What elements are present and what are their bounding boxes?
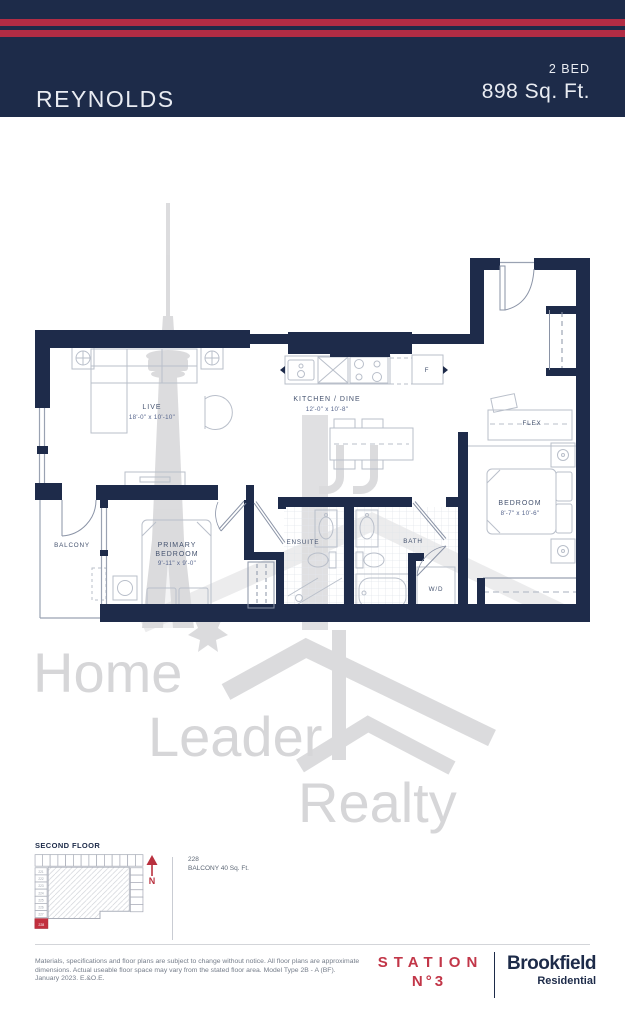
- keyplan-unit: 224: [38, 891, 43, 895]
- brookfield-logo: Brookfield Residential: [502, 953, 596, 987]
- kitchen-label: KITCHEN / DINE: [293, 396, 360, 403]
- header-stripe-bottom: [0, 30, 625, 37]
- lounge-chair: [205, 395, 232, 429]
- keyplan-unit: 223: [38, 884, 43, 888]
- primary-label-line2: BEDROOM: [155, 551, 198, 558]
- watermark-word-leader: Leader: [148, 705, 322, 768]
- keyplan-drawing: 221 222 223 224 225 226 227 228: [34, 853, 144, 937]
- keyplan-unit: 227: [38, 913, 43, 917]
- suite-number: 228: [188, 856, 249, 865]
- station-logo-line2: N°3: [370, 973, 485, 990]
- live-label: LIVE: [142, 404, 161, 411]
- nightstand: [551, 443, 575, 467]
- keyplan-unit: 226: [38, 906, 43, 910]
- light-fixture: [201, 347, 223, 369]
- bed-count-label: 2 BED: [482, 62, 590, 76]
- bedroom-label: BEDROOM: [498, 500, 541, 507]
- footer-logo-divider: [494, 952, 495, 998]
- keyplan-unit: 225: [38, 898, 43, 902]
- keyplan-unit: 221: [38, 870, 43, 874]
- flex-label: FLEX: [523, 420, 542, 427]
- brookfield-logo-line1: Brookfield: [502, 953, 596, 975]
- watermark-word-realty: Realty: [298, 771, 457, 834]
- kitchen-dims: 12'-0" x 10'-8": [306, 406, 349, 413]
- station-logo-line1: STATION: [370, 954, 485, 971]
- entry-door-leaf: [500, 266, 505, 310]
- balcony-track: [92, 568, 106, 600]
- live-dims: 18'-0" x 10'-10": [129, 414, 175, 421]
- header-stripe-top: [0, 19, 625, 26]
- header-band: REYNOLDS 2 BED 898 Sq. Ft.: [0, 0, 625, 117]
- light-fixture: [113, 576, 137, 600]
- floorplan-drawing: Home Leader Realty: [0, 130, 625, 845]
- keyplan-title: SECOND FLOOR: [35, 841, 100, 850]
- footer-rule: [35, 944, 590, 945]
- flex-desk: [488, 394, 572, 440]
- bath-label: BATH: [403, 538, 423, 545]
- primary-dims: 9'-11" x 9'-0": [158, 560, 196, 567]
- disclaimer-line1: Materials, specifications and floor plan…: [35, 958, 370, 967]
- laundry-label: W/D: [429, 586, 444, 593]
- primary-label-line1: PRIMARY: [158, 542, 197, 549]
- watermark-word-home: Home: [33, 641, 182, 704]
- north-indicator: N: [144, 855, 160, 886]
- disclaimer-line3: January 2023. E.&O.E.: [35, 975, 370, 984]
- square-footage-label: 898 Sq. Ft.: [482, 80, 590, 104]
- floorplan-page: REYNOLDS 2 BED 898 Sq. Ft.: [0, 0, 625, 1030]
- disclaimer-line2: dimensions. Actual useable floor space m…: [35, 967, 370, 976]
- bedroom-dims: 8'-7" x 10'-6": [501, 510, 540, 517]
- station-no3-logo: STATION N°3: [370, 954, 485, 990]
- north-label: N: [144, 877, 160, 886]
- balcony-note: BALCONY 40 Sq. Ft.: [188, 865, 249, 874]
- kitchen-counter: [285, 356, 412, 384]
- disclaimer-text: Materials, specifications and floor plan…: [35, 958, 370, 984]
- keyplan-note: 228 BALCONY 40 Sq. Ft.: [188, 856, 249, 873]
- page-title: REYNOLDS: [36, 86, 175, 113]
- entry-door-swing: [505, 269, 534, 310]
- keyplan-unit: 222: [38, 877, 43, 881]
- north-arrow-icon: [145, 855, 159, 877]
- keyplan-divider-line: [172, 857, 173, 940]
- fridge-label: F: [425, 367, 430, 374]
- balcony-label: BALCONY: [54, 542, 90, 549]
- ensuite-label: ENSUITE: [287, 539, 320, 546]
- brookfield-logo-line2: Residential: [502, 975, 596, 987]
- nightstand: [551, 539, 575, 563]
- keyplan-highlight-unit-number: 228: [38, 923, 44, 927]
- header-stats: 2 BED 898 Sq. Ft.: [482, 62, 590, 104]
